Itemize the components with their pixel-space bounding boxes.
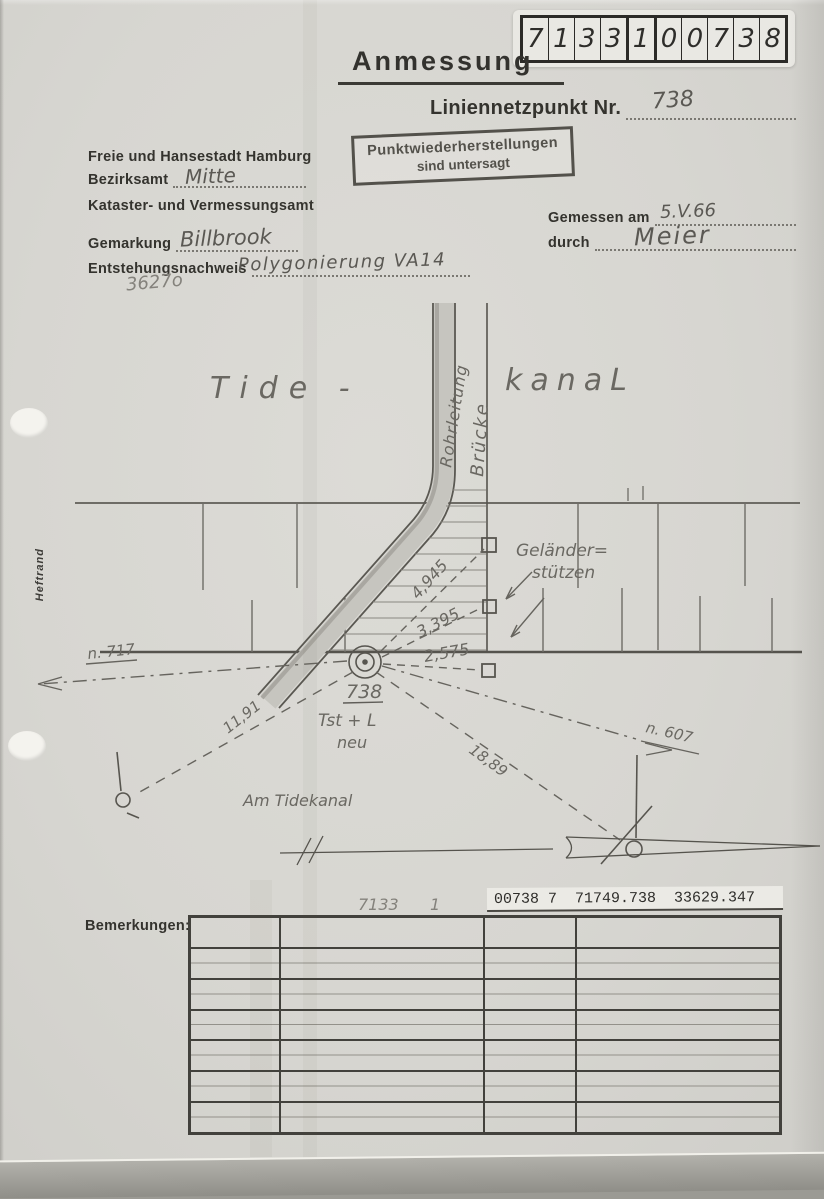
point-number-label: Liniennetzpunkt Nr.	[430, 97, 621, 120]
table-cell	[191, 1072, 279, 1101]
doc-number-sticker: 7133100738	[513, 10, 795, 67]
gemessen-value: 5.V.66	[660, 200, 717, 223]
table-cell	[191, 1103, 279, 1132]
doc-number-cells: 7133100738	[520, 15, 788, 63]
table-cell	[191, 918, 279, 947]
table-cell	[191, 949, 279, 978]
table-cell	[483, 1103, 575, 1132]
table-cell	[279, 949, 483, 978]
survey-point-symbol	[349, 646, 381, 678]
pencil-sheet-number: 7133	[358, 895, 399, 914]
dotted-line	[626, 117, 796, 120]
margin-label: Heftrand	[34, 548, 46, 601]
table-cell	[483, 918, 575, 947]
table-cell	[279, 1011, 483, 1040]
doc-number-digit: 1	[626, 18, 654, 60]
table-cell	[575, 918, 779, 947]
table-cell	[483, 1011, 575, 1040]
page-title: Anmessung	[352, 46, 534, 77]
office-city-label: Freie und Hansestadt Hamburg	[88, 149, 312, 165]
table-row	[191, 1009, 779, 1040]
ref-point-left: n. 717	[87, 640, 137, 663]
pipeline	[258, 303, 455, 708]
table-cell	[483, 1072, 575, 1101]
office-city: Freie und Hansestadt Hamburg	[88, 149, 312, 165]
distance-left: 11,91	[219, 697, 264, 738]
punch-hole	[10, 408, 48, 438]
doc-number-digit: 0	[654, 18, 682, 60]
bemerkungen-label: Bemerkungen:	[85, 918, 190, 934]
table-cell	[279, 1072, 483, 1101]
office-name-label: Kataster- und Vermessungsamt	[88, 198, 314, 214]
quay-lines	[75, 486, 802, 652]
railing-label-1: Geländer=	[516, 541, 608, 561]
canal-label-left: Tide -	[210, 371, 361, 406]
bridge-hatching	[330, 303, 487, 652]
table-row	[191, 1070, 779, 1101]
ref-point-right: n. 607	[644, 718, 695, 746]
durch-value-signature: Meier	[634, 221, 712, 252]
distance-railing-2: 3,395	[413, 604, 462, 642]
coordinate-label-strip: 00738 7 71749.738 33629.347	[487, 886, 783, 912]
table-row	[191, 978, 779, 1009]
corner-point-symbols	[116, 752, 652, 864]
doc-number-digit: 3	[574, 18, 600, 60]
table-cell	[575, 1041, 779, 1070]
table-cell	[575, 1103, 779, 1132]
pipeline-label: Rohrleitung	[436, 363, 471, 469]
doc-number-digit: 0	[681, 18, 707, 60]
pencil-index-number: 1	[430, 895, 440, 914]
point-note-label: neu	[337, 733, 367, 752]
table-cell	[575, 1072, 779, 1101]
street-axis-arrow	[280, 836, 820, 865]
punch-hole	[8, 731, 46, 761]
bezirksamt-value: Mitte	[185, 163, 237, 189]
restriction-stamp: Punktwiederherstellungen sind untersagt	[351, 126, 575, 186]
point-number-sketch: 738	[346, 681, 382, 703]
bezirksamt-label: Bezirksamt	[88, 172, 168, 188]
distance-right: 18,89	[466, 741, 511, 781]
gemarkung-label: Gemarkung	[88, 236, 171, 252]
table-cell	[575, 980, 779, 1009]
railing-label-2: stützen	[532, 563, 595, 583]
table-row	[191, 947, 779, 978]
railing-squares	[482, 538, 496, 677]
point-number-value: 738	[651, 87, 695, 115]
table-cell	[191, 1011, 279, 1040]
doc-number-digit: 3	[733, 18, 759, 60]
table-cell	[279, 1103, 483, 1132]
pencil-note: 3627o	[125, 270, 183, 296]
durch-label: durch	[548, 235, 590, 251]
doc-number-digit: 7	[707, 18, 733, 60]
office-name: Kataster- und Vermessungsamt	[88, 198, 314, 214]
doc-number-digit: 3	[600, 18, 626, 60]
point-number-row: Liniennetzpunkt Nr.	[430, 97, 796, 120]
table-cell	[191, 1041, 279, 1070]
measurement-lines	[38, 549, 699, 840]
table-cell	[483, 1041, 575, 1070]
gemarkung-value: Billbrook	[180, 224, 273, 251]
doc-number-digit: 1	[548, 18, 574, 60]
point-type-label: Tst + L	[318, 711, 376, 731]
table-cell	[279, 980, 483, 1009]
table-row	[191, 918, 779, 947]
scanned-paper: 7133100738 Anmessung Liniennetzpunkt Nr.…	[0, 0, 824, 1169]
bemerkungen-table	[188, 915, 782, 1135]
distance-railing-1: 4,945	[407, 556, 452, 603]
title-underline	[338, 82, 564, 85]
table-cell	[483, 980, 575, 1009]
doc-number-digit: 8	[759, 18, 785, 60]
table-row	[191, 1101, 779, 1132]
street-name-label: Am Tidekanal	[242, 791, 353, 810]
distance-railing-3: 2,575	[422, 639, 470, 666]
bridge-label: Brücke	[467, 402, 493, 478]
table-cell	[575, 1011, 779, 1040]
table-cell	[483, 949, 575, 978]
table-cell	[279, 918, 483, 947]
canal-label-right: kanaL	[505, 363, 635, 398]
table-cell	[191, 980, 279, 1009]
scan-edge-bottom	[0, 1151, 824, 1198]
table-row	[191, 1039, 779, 1070]
table-cell	[575, 949, 779, 978]
table-cell	[279, 1041, 483, 1070]
